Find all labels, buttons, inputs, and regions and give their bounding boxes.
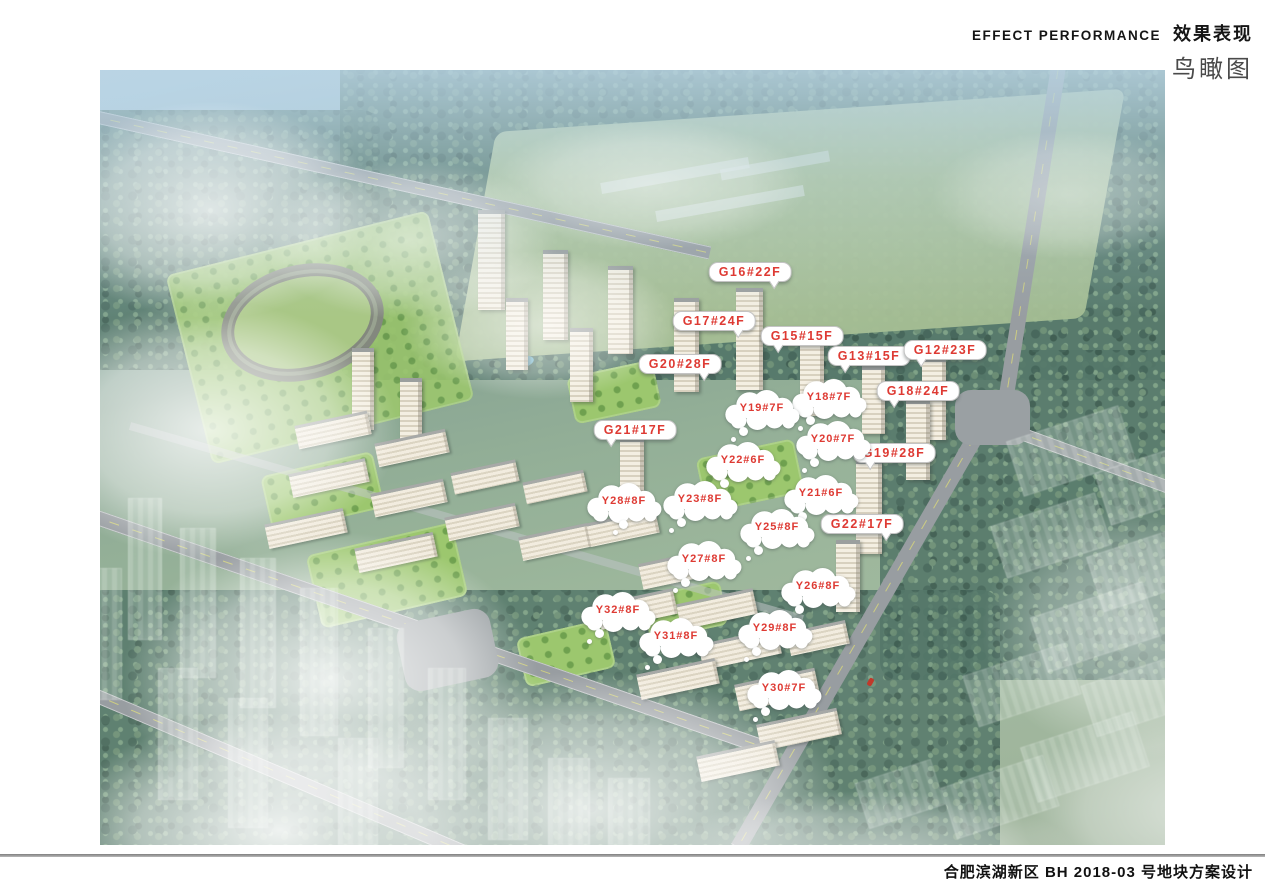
building-label-y22-6f: Y22#6F (704, 442, 782, 482)
building-label-text: Y27#8F (682, 553, 727, 565)
building-label-text: Y30#7F (762, 682, 807, 694)
building-label-g22-17f: G22#17F (821, 514, 904, 534)
building-label-text: Y18#7F (807, 391, 852, 403)
building-label-y19-7f: Y19#7F (723, 390, 801, 430)
bubble-tail-dot (753, 717, 758, 722)
building-label-y23-8f: Y23#8F (661, 481, 739, 521)
page-title: EFFECT PERFORMANCE效果表现 (972, 20, 1253, 46)
bubble-tail-dot (754, 546, 763, 555)
bubble-tail-dot (645, 665, 650, 670)
building-label-text: G18#24F (887, 384, 950, 398)
building-label-text: G13#15F (838, 349, 901, 363)
building-label-text: G19#28F (863, 446, 926, 460)
bubble-tail-dot (752, 647, 761, 656)
bubble-tail-dot (669, 528, 674, 533)
building-label-text: G20#28F (649, 357, 712, 371)
bubble-tail-dot (613, 530, 618, 535)
building-label-g17-24f: G17#24F (673, 311, 756, 331)
building-label-text: Y22#6F (721, 454, 766, 466)
subtitle-birdseye: 鸟瞰图 (972, 49, 1253, 84)
bubble-tail-dot (746, 556, 751, 561)
footer-caption: 合肥滨湖新区 BH 2018-03 号地块方案设计 (944, 861, 1253, 882)
building-label-y31-8f: Y31#8F (637, 618, 715, 658)
building-label-g15-15f: G15#15F (761, 326, 844, 346)
building-label-text: Y23#8F (678, 493, 723, 505)
building-label-y20-7f: Y20#7F (794, 421, 872, 461)
building-label-y30-7f: Y30#7F (745, 670, 823, 710)
bubble-tail-dot (744, 657, 749, 662)
building-label-y18-7f: Y18#7F (790, 379, 868, 419)
building-label-text: Y29#8F (753, 622, 798, 634)
bubble-tail-dot (673, 588, 678, 593)
building-label-text: G22#17F (831, 517, 894, 531)
building-label-text: G12#23F (914, 343, 977, 357)
building-label-g12-23f: G12#23F (904, 340, 987, 360)
building-label-text: G17#24F (683, 314, 746, 328)
bubble-tail-dot (595, 629, 604, 638)
aerial-rendering: G16#22FG17#24FG15#15FG13#15FG12#23FG20#2… (100, 70, 1165, 845)
building-label-text: Y31#8F (654, 630, 699, 642)
building-label-text: G21#17F (604, 423, 667, 437)
bubble-tail-dot (681, 578, 690, 587)
title-chinese: 效果表现 (1173, 24, 1253, 44)
bubble-tail-dot (619, 520, 628, 529)
bubble-tail-dot (653, 655, 662, 664)
page-header: EFFECT PERFORMANCE效果表现 鸟瞰图 (972, 20, 1253, 84)
building-label-text: Y26#8F (796, 580, 841, 592)
bubble-tail-dot (677, 518, 686, 527)
building-label-text: Y20#7F (811, 433, 856, 445)
bubble-tail-dot (761, 707, 770, 716)
bubble-tail-dot (802, 468, 807, 473)
building-label-g16-22f: G16#22F (709, 262, 792, 282)
building-label-y28-8f: Y28#8F (585, 483, 663, 523)
building-label-text: Y32#8F (596, 604, 641, 616)
building-label-y29-8f: Y29#8F (736, 610, 814, 650)
building-label-y25-8f: Y25#8F (738, 509, 816, 549)
building-label-y27-8f: Y27#8F (665, 541, 743, 581)
building-label-text: G16#22F (719, 265, 782, 279)
building-label-g13-15f: G13#15F (828, 346, 911, 366)
building-label-g18-24f: G18#24F (877, 381, 960, 401)
building-label-text: Y19#7F (740, 402, 785, 414)
bubble-tail-dot (587, 639, 592, 644)
building-label-text: Y21#6F (799, 487, 844, 499)
building-labels-layer: G16#22FG17#24FG15#15FG13#15FG12#23FG20#2… (100, 70, 1165, 845)
bubble-tail-dot (810, 458, 819, 467)
building-label-text: Y25#8F (755, 521, 800, 533)
title-english: EFFECT PERFORMANCE (972, 28, 1161, 43)
building-label-text: G15#15F (771, 329, 834, 343)
footer-rule (0, 854, 1265, 857)
building-label-g20-28f: G20#28F (639, 354, 722, 374)
building-label-g21-17f: G21#17F (594, 420, 677, 440)
bubble-tail-dot (739, 427, 748, 436)
building-label-y26-8f: Y26#8F (779, 568, 857, 608)
building-label-text: Y28#8F (602, 495, 647, 507)
